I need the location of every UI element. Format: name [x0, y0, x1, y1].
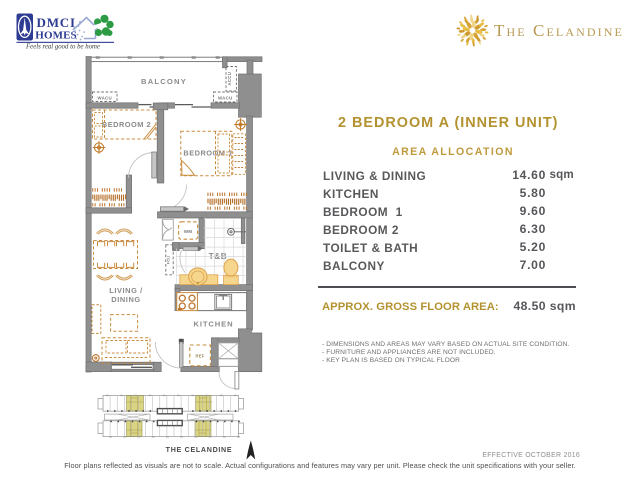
svg-text:BEDROOM 2: BEDROOM 2 — [102, 120, 151, 129]
svg-text:BEDROOM 1: BEDROOM 1 — [183, 149, 232, 158]
svg-text:DINING: DINING — [111, 295, 140, 304]
svg-text:WACU: WACU — [218, 96, 233, 101]
svg-text:BALCONY: BALCONY — [141, 77, 187, 86]
svg-text:REF: REF — [196, 354, 205, 359]
svg-text:THE CELANDINE: THE CELANDINE — [166, 446, 233, 454]
svg-text:ACCU: ACCU — [227, 72, 232, 86]
svg-text:WACU: WACU — [97, 95, 112, 100]
svg-text:KITCHEN: KITCHEN — [193, 320, 233, 329]
svg-text:LIVING /: LIVING / — [109, 286, 143, 295]
svg-text:The Celandine: The Celandine — [494, 21, 624, 40]
svg-text:WM: WM — [184, 229, 193, 234]
svg-text:HOMES: HOMES — [35, 30, 76, 42]
svg-text:FCU: FCU — [167, 256, 171, 264]
svg-text:DMCI: DMCI — [37, 15, 76, 30]
svg-text:Feels real good to be home: Feels real good to be home — [25, 44, 100, 51]
